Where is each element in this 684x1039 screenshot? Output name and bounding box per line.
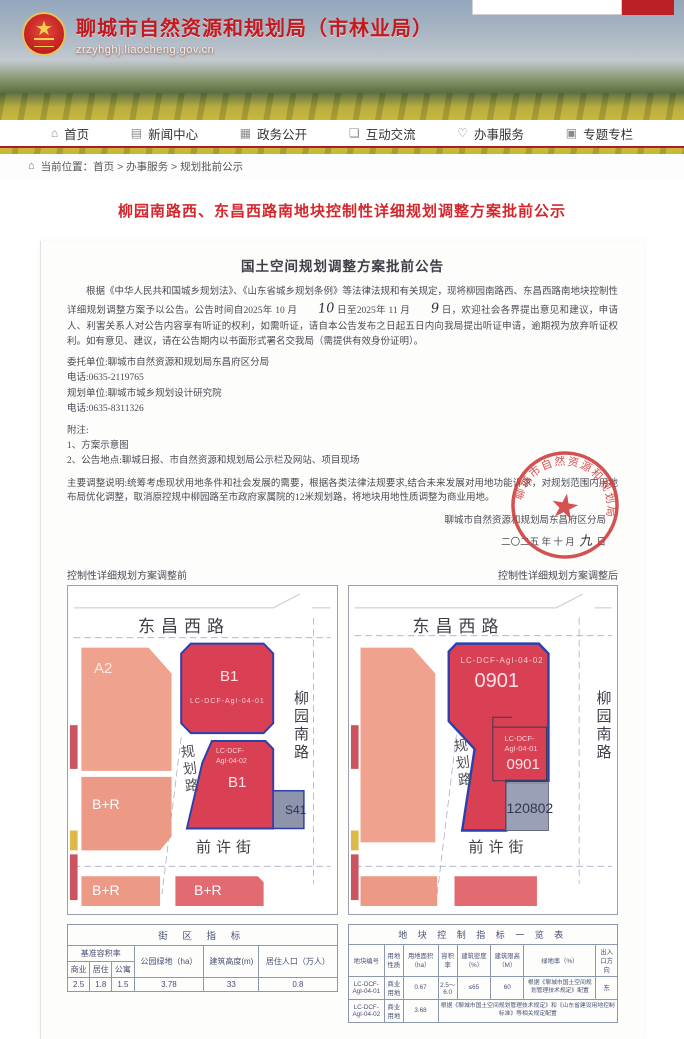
handwritten-day-end: 9 (410, 299, 443, 321)
column-header: 居住 (90, 961, 112, 977)
block-label-b1-top: B1 (220, 668, 238, 685)
block-label-b1-bottom: B1 (228, 774, 246, 791)
table-cell: 2.5 (68, 977, 90, 991)
grid-icon: ▣ (566, 126, 577, 140)
column-header: 基准容积率 (68, 945, 135, 961)
column-header: 容积率 (438, 944, 457, 976)
column-header: 用地性质 (385, 944, 404, 976)
notice-paragraph: 根据《中华人民共和国城乡规划法》、《山东省城乡规划条例》等法律法规和有关规定，现… (67, 285, 618, 349)
column-header: 建筑密度（%） (457, 944, 491, 976)
block-label-br-mid: B+R (92, 796, 120, 812)
date-text: 日 (596, 538, 606, 548)
plan-panel-after: 控制性详细规划方案调整后 (348, 567, 619, 1023)
nav-label: 办事服务 (474, 124, 524, 143)
parcel-number-main: 0901 (475, 670, 520, 693)
main-nav: ⌂ 首页 ▤ 新闻中心 ▦ 政务公开 ❏ 互动交流 ♡ 办事服务 ▣ 专题专栏 (0, 120, 684, 148)
table-cell: 3.78 (134, 977, 204, 991)
parcel-code-b1-bottom-line2: AgI-04-02 (216, 758, 247, 765)
table-cell: LC-DCF-AgI-04-01 (348, 976, 385, 999)
search-bar (472, 0, 674, 15)
emblem-gate-icon (34, 38, 54, 47)
notice-title: 国土空间规划调整方案批前公告 (67, 255, 618, 275)
national-emblem-logo: ★ (22, 12, 66, 56)
nav-label: 专题专栏 (583, 124, 633, 143)
table-row: LC-DCF-AgI-04-01 商业用地 0.67 2.5～6.0 ≤65 6… (348, 976, 618, 999)
nav-label: 政务公开 (257, 124, 307, 143)
column-header: 公园绿地（ha） (134, 945, 204, 977)
handwritten-day-sign: 九 (576, 530, 595, 556)
search-button[interactable] (622, 0, 674, 15)
column-header: 出入口方向 (596, 944, 618, 976)
search-input[interactable] (472, 0, 622, 15)
nav-item-services[interactable]: ♡ 办事服务 (457, 124, 524, 143)
nav-label: 互动交流 (366, 124, 416, 143)
parcel-code-sub-line2: AgI-04-01 (505, 744, 538, 753)
road-label-qianxu-street: 前许街 (469, 836, 529, 857)
table-cell: 3.68 (403, 999, 438, 1022)
table-title: 地 块 控 制 指 标 一 览 表 (348, 924, 618, 944)
note-1: 1、方案示意图 (67, 439, 618, 454)
heart-icon: ♡ (457, 126, 468, 140)
home-icon: ⌂ (28, 160, 35, 172)
nav-label: 新闻中心 (148, 124, 198, 143)
block-label-br-bottom-left: B+R (92, 882, 120, 898)
column-header: 公寓 (112, 961, 134, 977)
nav-label: 首页 (64, 124, 89, 143)
site-banner: ★ 聊城市自然资源和规划局（市林业局） zrzyhghj.liaocheng.g… (0, 0, 684, 178)
parcel-number-gray: 120802 (507, 800, 554, 816)
table-header-row: 地块编号 用地性质 用地面积（ha） 容积率 建筑密度（%） 建筑限高（M） 绿… (348, 944, 618, 976)
block-indicator-table: 街 区 指 标 基准容积率 公园绿地（ha） 建筑高度(m) 居住人口（万人） … (67, 924, 338, 992)
column-header: 建筑限高（M） (491, 944, 524, 976)
date-text: 二〇二五 年 十 月 (501, 538, 575, 548)
adjustment-description: 主要调整说明:统筹考虑现状用地条件和社会发展的需要，根据各类法律法规要求,结合未… (67, 477, 618, 506)
parcel-code-b1-top: LC-DCF-AgI-04-01 (190, 698, 265, 705)
road-label-liuyuan-south: 柳园南路 (593, 690, 614, 762)
breadcrumb: ⌂ 当前位置： 首页 > 办事服务 > 规划批前公示 (0, 154, 684, 178)
plan-phone: 电话:0635-8311326 (67, 402, 618, 417)
plan-caption-before: 控制性详细规划方案调整前 (67, 567, 338, 582)
block-label-s41: S41 (285, 803, 306, 817)
site-brand: ★ 聊城市自然资源和规划局（市林业局） zrzyhghj.liaocheng.g… (22, 12, 433, 56)
notice-document: 国土空间规划调整方案批前公告 根据《中华人民共和国城乡规划法》、《山东省城乡规划… (40, 241, 644, 1039)
notes-title: 附注: (67, 424, 618, 439)
news-icon: ▤ (131, 126, 142, 140)
column-header: 商业 (68, 961, 90, 977)
table-title: 街 区 指 标 (68, 924, 338, 945)
table-cell: 2.5～6.0 (438, 976, 457, 999)
nav-item-home[interactable]: ⌂ 首页 (51, 124, 89, 143)
table-cell: 商业用地 (385, 999, 404, 1022)
table-row: LC-DCF-AgI-04-02 商业用地 3.68 根据《聊城市国土空间规划管… (348, 999, 618, 1022)
block-label-a2: A2 (94, 660, 112, 677)
entrust-phone: 电话:0635-2119765 (67, 371, 618, 386)
table-cell-merged: 根据《聊城市国土空间规划管理技术规定》和《山东省建设用地控制标准》等相关规定配置 (438, 999, 617, 1022)
signature-org: 聊城市自然资源和规划局东昌府区分局 (67, 512, 606, 530)
gov-info-icon: ▦ (240, 126, 251, 140)
table-cell: 0.67 (403, 976, 438, 999)
breadcrumb-prefix: 当前位置： (41, 159, 94, 174)
table-cell: 根据《聊城市国土空间规划管理技术规定》配置 (524, 976, 596, 999)
site-title: 聊城市自然资源和规划局（市林业局） (76, 12, 433, 41)
road-label-dongchang-west: 东昌西路 (413, 612, 505, 637)
signature-block: 聊城市自然资源和规划局东昌府区分局 二〇二五 年 十 月 九 日 聊城市自然资源… (67, 512, 618, 555)
home-icon: ⌂ (51, 126, 58, 140)
parcel-code-b1-bottom-line1: LC-DCF- (216, 748, 244, 755)
plan-unit: 规划单位:聊城市城乡规划设计研究院 (67, 387, 618, 402)
table-cell: ≤65 (457, 976, 491, 999)
paragraph-text: 日至2025年 11 月 (337, 306, 410, 316)
site-url: zrzyhghj.liaocheng.gov.cn (76, 44, 433, 56)
page-title: 柳园南路西、东昌西路南地块控制性详细规划调整方案批前公示 (0, 178, 684, 231)
plan-map-after: 东昌西路 LC-DCF-AgI-04-02 0901 LC-DCF- AgI-0… (348, 585, 619, 915)
plan-map-before: 东昌西路 A2 B1 LC-DCF-AgI-04-01 柳园南路 规划路 LC-… (67, 585, 338, 915)
table-cell: 33 (204, 977, 259, 991)
column-header: 绿地率（%） (524, 944, 596, 976)
table-cell: 1.8 (90, 977, 112, 991)
parcel-number-sub: 0901 (507, 756, 540, 773)
breadcrumb-path[interactable]: 首页 > 办事服务 > 规划批前公示 (93, 159, 243, 174)
nav-item-special-topics[interactable]: ▣ 专题专栏 (566, 124, 633, 143)
nav-item-interaction[interactable]: ❏ 互动交流 (349, 124, 416, 143)
column-header: 居住人口（万人） (259, 945, 337, 977)
table-row: 2.5 1.8 1.5 3.78 33 0.8 (68, 977, 338, 991)
table-cell: 东 (596, 976, 618, 999)
note-2: 2、公告地点:聊城日报、市自然资源和规划局公示栏及网站、项目现场 (67, 454, 618, 469)
table-cell: 商业用地 (385, 976, 404, 999)
table-cell: 60 (491, 976, 524, 999)
block-label-br-bottom-mid: B+R (194, 882, 222, 898)
column-header: 地块编号 (348, 944, 385, 976)
plan-figures: 控制性详细规划方案调整前 (67, 567, 618, 1023)
entrust-unit: 委托单位:聊城市自然资源和规划局东昌府区分局 (67, 356, 618, 371)
parcel-code-sub-line1: LC-DCF- (505, 734, 535, 743)
plan-caption-after: 控制性详细规划方案调整后 (348, 567, 619, 582)
table-cell: LC-DCF-AgI-04-02 (348, 999, 385, 1022)
column-header: 用地面积（ha） (403, 944, 438, 976)
road-label-liuyuan-south: 柳园南路 (290, 690, 311, 762)
emblem-star-icon: ★ (24, 18, 64, 40)
table-cell: 1.5 (112, 977, 134, 991)
nav-item-news[interactable]: ▤ 新闻中心 (131, 124, 198, 143)
table-cell: 0.8 (259, 977, 337, 991)
plan-panel-before: 控制性详细规划方案调整前 (67, 567, 338, 1023)
signature-date: 二〇二五 年 十 月 九 日 (67, 530, 606, 555)
column-header: 建筑高度(m) (204, 945, 259, 977)
nav-item-gov-info[interactable]: ▦ 政务公开 (240, 124, 307, 143)
parcel-code-main: LC-DCF-AgI-04-02 (461, 656, 544, 665)
interaction-icon: ❏ (349, 126, 360, 140)
parcel-control-table: 地 块 控 制 指 标 一 览 表 地块编号 用地性质 用地面积（ha） 容积率… (348, 924, 619, 1023)
road-label-qianxu-street: 前许街 (196, 836, 256, 857)
handwritten-day-start: 10 (297, 298, 338, 321)
road-label-dongchang-west: 东昌西路 (138, 612, 230, 637)
